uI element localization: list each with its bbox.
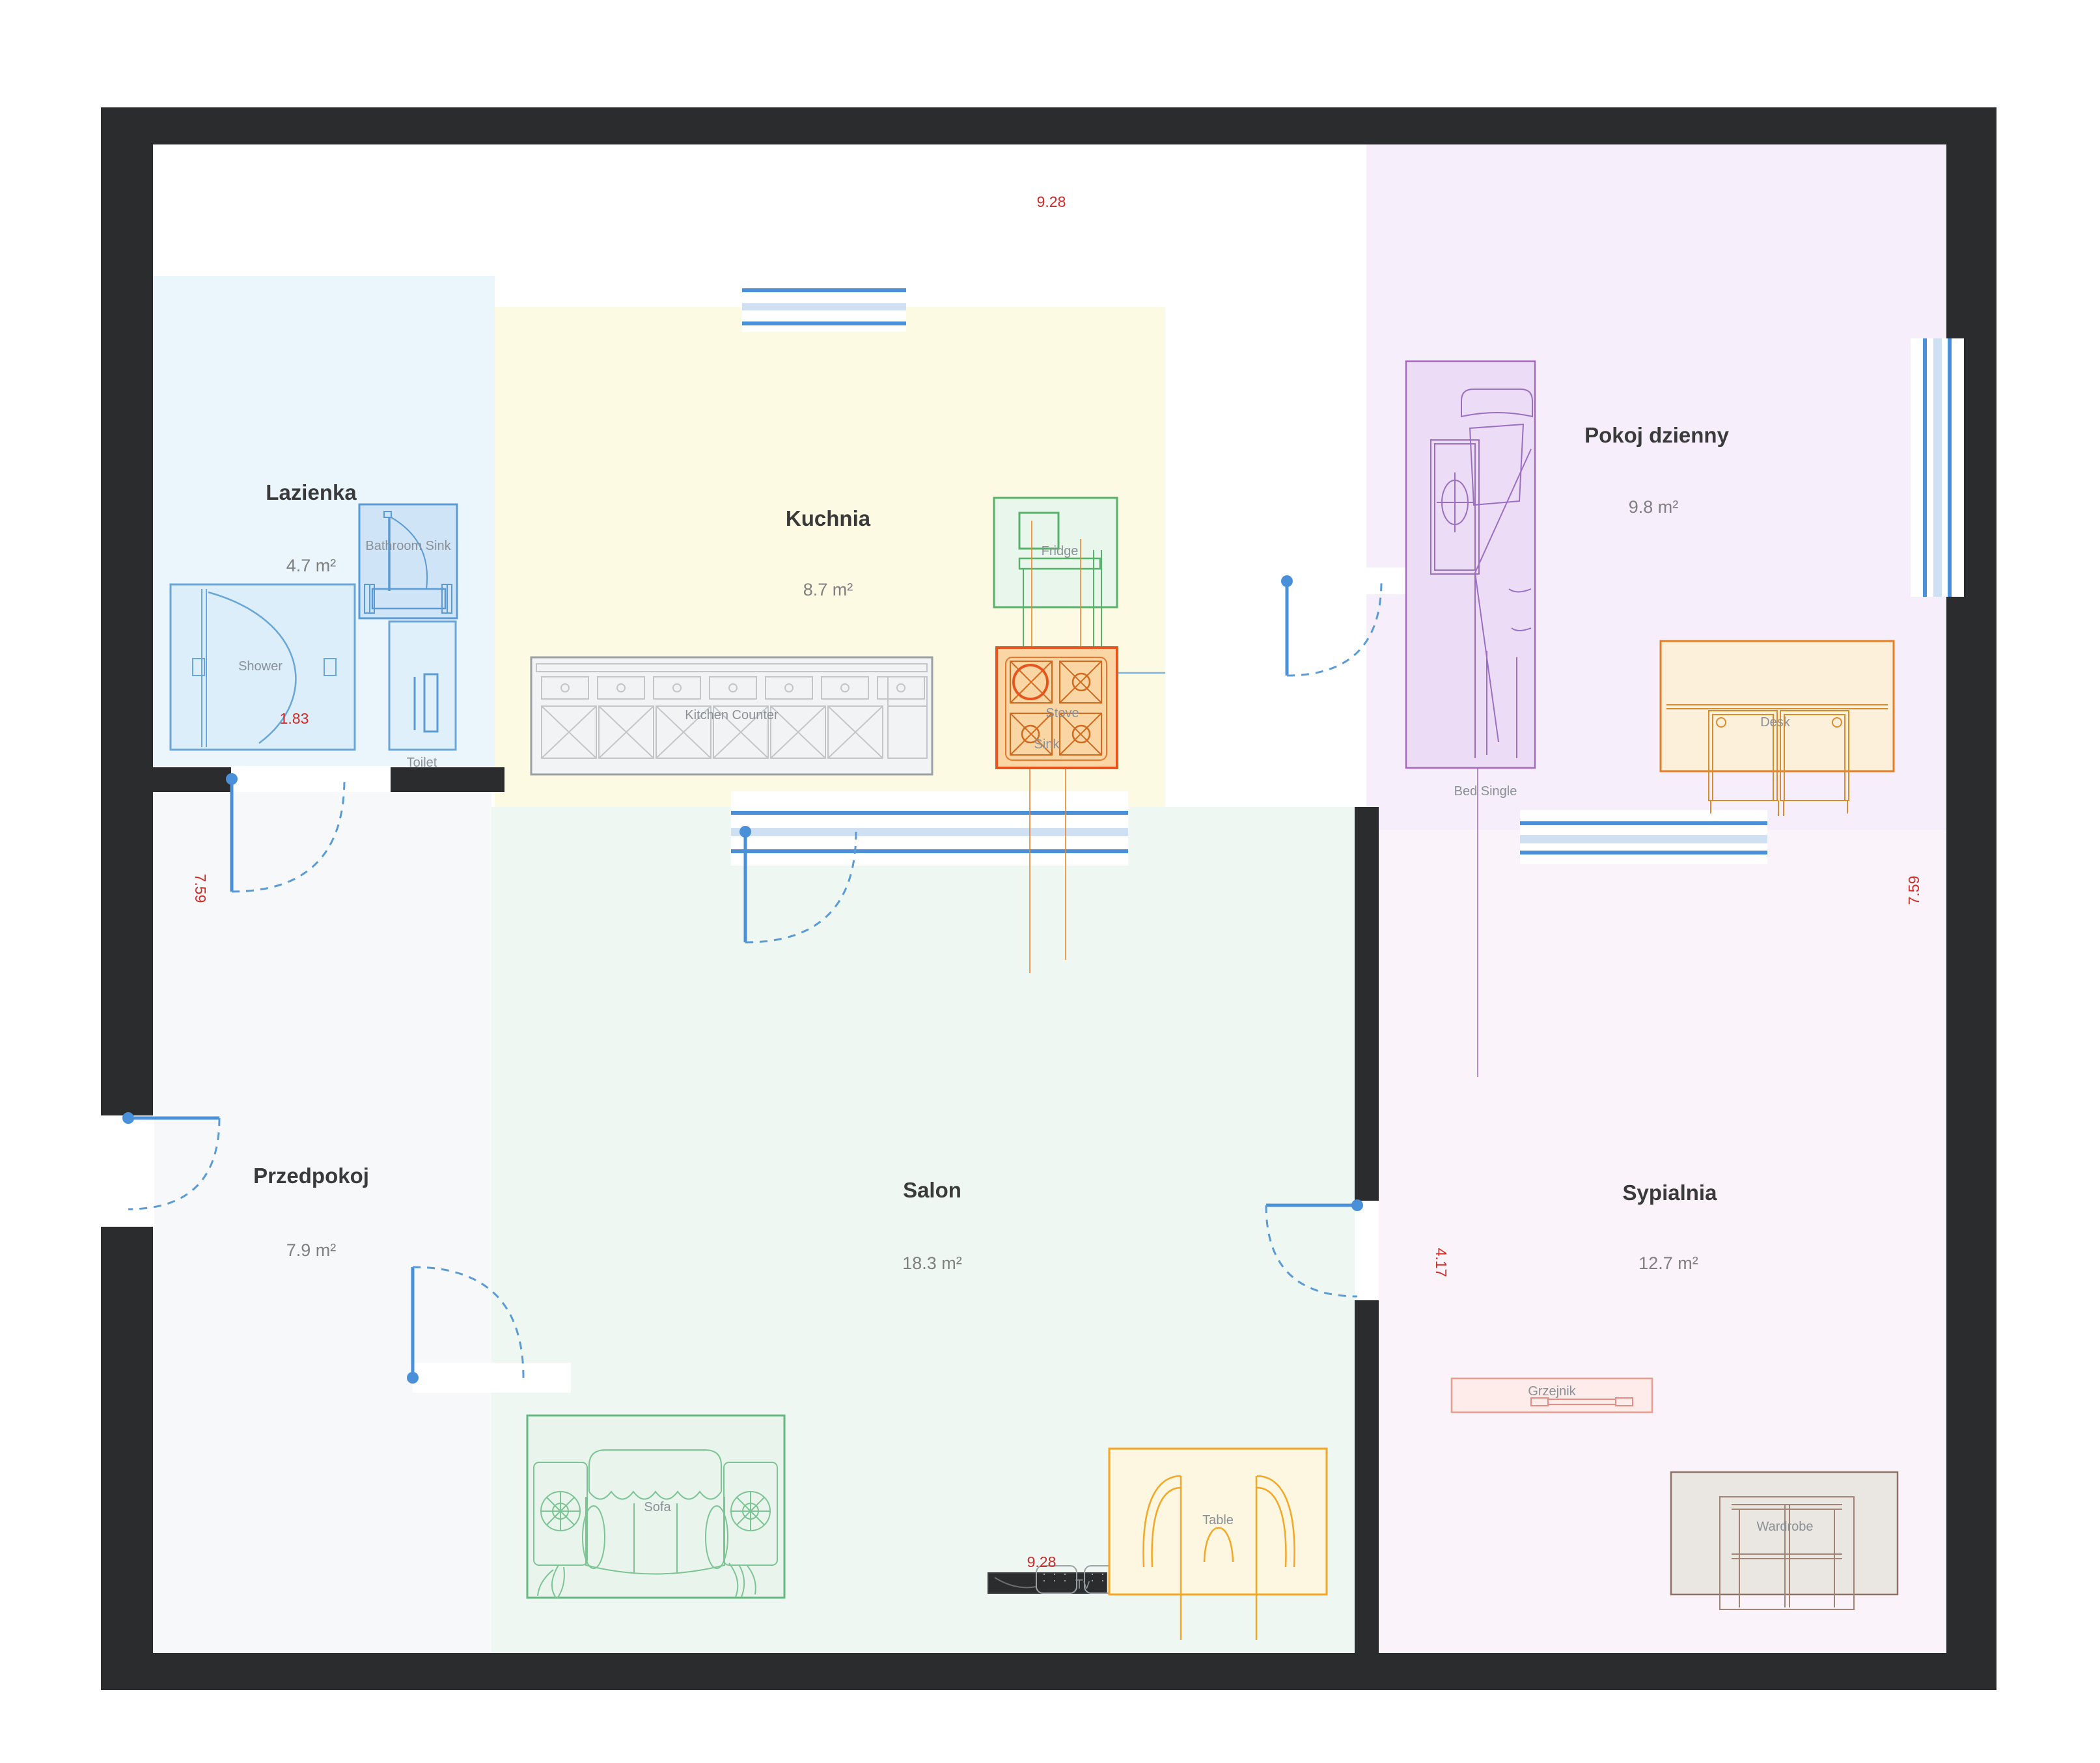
shower-label: Shower — [238, 659, 283, 674]
tv-label: Tv — [1075, 1578, 1090, 1592]
title-pokoj-dzienny: Pokoj dzienny — [1584, 423, 1730, 447]
area-kuchnia: 8.7 m² — [803, 580, 853, 599]
dim-top: 9.28 — [1037, 193, 1066, 210]
bed-label: Bed Single — [1454, 784, 1517, 799]
toilet[interactable]: Toilet — [389, 622, 456, 770]
area-lazienka: 4.7 m² — [286, 556, 337, 575]
title-sypialnia: Sypialnia — [1623, 1181, 1718, 1205]
desk-label: Desk — [1760, 715, 1791, 730]
entrance-opening — [101, 1115, 154, 1227]
title-przedpokoj: Przedpokoj — [253, 1164, 369, 1188]
sofa[interactable]: Sofa — [527, 1415, 784, 1598]
shower[interactable]: Shower 1.83 — [171, 584, 355, 750]
sofa-label: Sofa — [644, 1500, 671, 1514]
radiator[interactable]: Grzejnik — [1452, 1378, 1652, 1412]
room-przedpokoj[interactable] — [153, 792, 491, 1653]
dim-bottom: 9.28 — [1027, 1553, 1057, 1570]
fridge-label: Fridge — [1042, 544, 1079, 558]
dim-bedroom-entry: 4.17 — [1433, 1248, 1450, 1278]
title-salon: Salon — [903, 1178, 961, 1202]
dim-shower: 1.83 — [280, 710, 309, 727]
table-label: Table — [1202, 1513, 1234, 1527]
kitchen-counter-label: Kitchen Counter — [685, 708, 779, 722]
kitchen-sink-label: Sink — [1034, 737, 1060, 752]
title-kuchnia: Kuchnia — [786, 506, 871, 530]
wardrobe-label: Wardrobe — [1756, 1520, 1813, 1534]
dim-right: 7.59 — [1905, 876, 1922, 905]
area-przedpokoj: 7.9 m² — [286, 1240, 337, 1260]
toilet-label: Toilet — [407, 756, 437, 770]
window-kitchen-salon[interactable] — [731, 791, 1128, 866]
window-bedroom-divider[interactable] — [1520, 810, 1767, 864]
bathroom-sink-label: Bathroom Sink — [365, 539, 451, 553]
dim-left: 7.59 — [192, 874, 209, 903]
wardrobe[interactable]: Wardrobe — [1671, 1472, 1898, 1609]
stove-label: Stove — [1045, 706, 1079, 720]
area-salon: 18.3 m² — [902, 1253, 962, 1273]
title-lazienka: Lazienka — [266, 480, 357, 504]
bathroom-sink[interactable]: Bathroom Sink — [359, 504, 457, 618]
window-kitchen-north[interactable] — [742, 277, 906, 332]
area-pokoj-dzienny: 9.8 m² — [1629, 497, 1679, 517]
area-sypialnia: 12.7 m² — [1638, 1253, 1698, 1273]
kitchen-counter[interactable]: Kitchen Counter — [531, 657, 932, 774]
radiator-label: Grzejnik — [1528, 1384, 1576, 1399]
floor-plan-canvas: Shower 1.83 Bathroom Sink Toilet — [0, 0, 2100, 1763]
window-east-wall[interactable] — [1911, 338, 1964, 597]
